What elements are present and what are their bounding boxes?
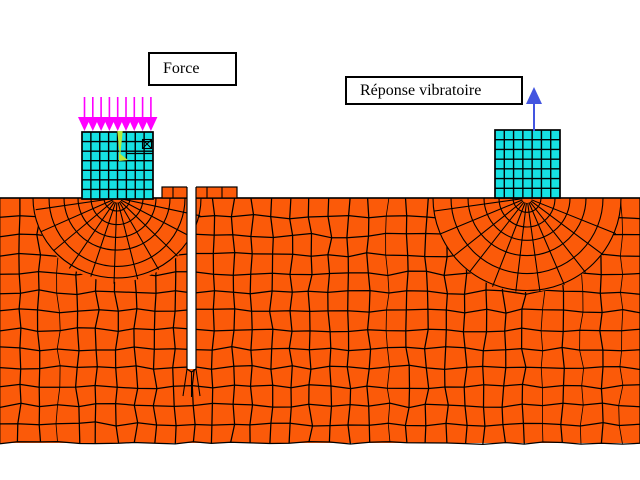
down-arrow-icon: [120, 97, 133, 131]
down-arrow-icon: [136, 97, 149, 131]
down-arrow-icon: [95, 97, 108, 131]
right-foundation-block: [495, 130, 560, 198]
down-arrow-icon: [78, 97, 91, 131]
force-label: Force: [163, 60, 199, 78]
down-arrow-icon: [111, 97, 124, 131]
down-arrow-icon: [144, 97, 157, 131]
mesh-scene: [0, 0, 640, 480]
down-arrow-icon: [86, 97, 99, 131]
down-arrow-icon: [128, 97, 141, 131]
force-label-box: Force: [148, 52, 237, 86]
fem-mesh-figure: Force Réponse vibratoire: [0, 0, 640, 480]
up-arrow-icon: [526, 87, 542, 131]
load-arrows: [78, 97, 157, 131]
response-label-box: Réponse vibratoire: [345, 76, 523, 105]
down-arrow-icon: [103, 97, 116, 131]
response-label: Réponse vibratoire: [360, 82, 481, 100]
trench-collar: [162, 187, 237, 198]
